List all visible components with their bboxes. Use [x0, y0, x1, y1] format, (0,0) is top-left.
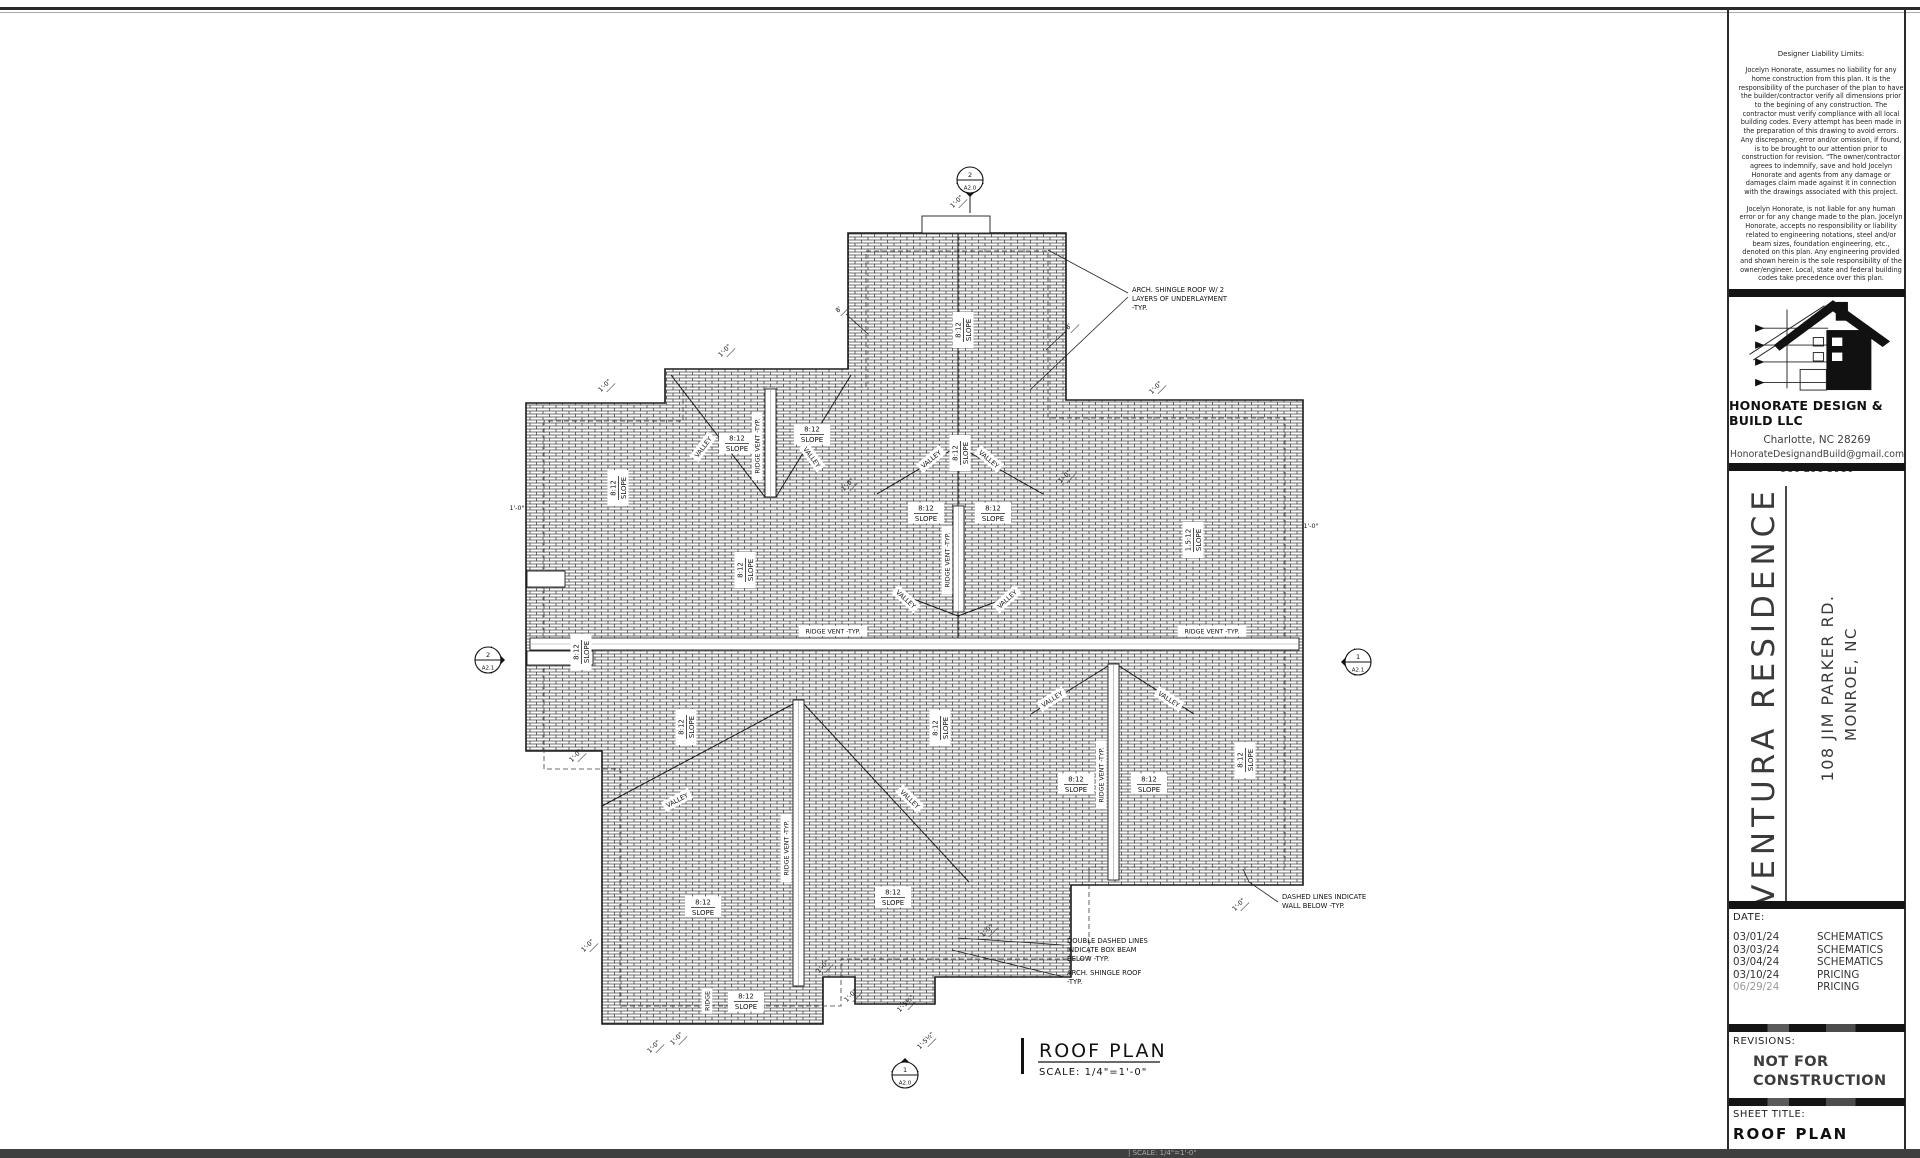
- svg-text:A2.0: A2.0: [964, 186, 977, 192]
- roof-opening: [527, 571, 565, 587]
- title-tick: [1021, 1038, 1024, 1074]
- stamp-line1: NOT FOR: [1753, 1053, 1903, 1072]
- date-type: SCHEMATICS: [1817, 956, 1883, 969]
- date-rows: 03/01/24 SCHEMATICS 03/03/24 SCHEMATICS …: [1733, 931, 1903, 994]
- svg-text:1'-0": 1'-0": [1231, 897, 1247, 913]
- svg-text:8:12: 8:12: [804, 426, 820, 434]
- svg-text:8:12: 8:12: [885, 889, 901, 897]
- section-marker: 2A2.0: [956, 167, 984, 197]
- svg-text:8:12: 8:12: [932, 720, 940, 736]
- svg-text:8:12: 8:12: [695, 899, 711, 907]
- svg-text:SLOPE: SLOPE: [882, 899, 904, 907]
- dimension-label: 1'-0": [1304, 523, 1319, 530]
- svg-text:SLOPE: SLOPE: [735, 1003, 757, 1011]
- divider-bar: [1729, 1098, 1905, 1106]
- svg-text:SLOPE: SLOPE: [1138, 786, 1160, 794]
- roof-opening: [922, 216, 990, 233]
- svg-text:1: 1: [903, 1066, 907, 1074]
- svg-text:BELOW -TYP.: BELOW -TYP.: [1067, 955, 1109, 963]
- svg-text:SLOPE: SLOPE: [583, 641, 591, 663]
- footer-strip-text: | SCALE: 1/4"=1'-0": [1128, 1149, 1197, 1157]
- svg-text:A2.0: A2.0: [899, 1081, 912, 1087]
- svg-text:8:12: 8:12: [1068, 776, 1084, 784]
- svg-text:2: 2: [486, 651, 490, 659]
- date-type: PRICING: [1817, 969, 1859, 982]
- divider-bar: [1729, 463, 1905, 471]
- svg-text:1'-0": 1'-0": [717, 343, 733, 359]
- slope-label: 8:12SLOPE: [719, 433, 755, 454]
- slope-label: 8:12SLOPE: [1058, 774, 1094, 795]
- svg-text:1'-5½": 1'-5½": [915, 1030, 936, 1051]
- annotation-note: ARCH. SHINGLE ROOF W/ 2LAYERS OF UNDERLA…: [1132, 286, 1228, 312]
- svg-text:8:12: 8:12: [952, 445, 960, 461]
- svg-text:SLOPE: SLOPE: [962, 442, 970, 464]
- date-row: 06/29/24 PRICING: [1733, 981, 1903, 994]
- svg-text:RIDGE VENT -TYP.: RIDGE VENT -TYP.: [1098, 748, 1105, 803]
- revisions-label: REVISIONS:: [1733, 1036, 1903, 1047]
- svg-text:8:12: 8:12: [573, 644, 581, 660]
- ridge-vent-label: RIDGE VENT -TYP.: [799, 626, 867, 637]
- svg-text:SLOPE: SLOPE: [982, 515, 1004, 523]
- sheet-bottom-edge: | SCALE: 1/4"=1'-0": [0, 1149, 1920, 1158]
- annotation-note: DOUBLE DASHED LINESINDICATE BOX BEAMBELO…: [1067, 937, 1148, 963]
- slope-label: 8:12SLOPE: [1131, 774, 1167, 795]
- svg-text:A2.1: A2.1: [1352, 668, 1365, 674]
- divider-bar: [1729, 1024, 1905, 1032]
- svg-text:8:12: 8:12: [1237, 752, 1245, 768]
- svg-text:WALL BELOW -TYP.: WALL BELOW -TYP.: [1282, 902, 1345, 910]
- dimension-label: 1'-0": [717, 342, 735, 360]
- slope-label: 8:12SLOPE: [908, 503, 944, 524]
- revisions-section: REVISIONS: NOT FOR CONSTRUCTION: [1733, 1036, 1903, 1091]
- date-type: SCHEMATICS: [1817, 931, 1883, 944]
- slope-label: 8:12SLOPE: [875, 887, 911, 908]
- slope-label: 8:12SLOPE: [728, 991, 764, 1012]
- date-row: 03/01/24 SCHEMATICS: [1733, 931, 1903, 944]
- sheet-border-top-thin: [0, 12, 1920, 13]
- svg-text:INDICATE BOX BEAM: INDICATE BOX BEAM: [1067, 946, 1137, 954]
- date-value: 03/01/24: [1733, 931, 1817, 944]
- svg-text:-TYP.: -TYP.: [1132, 304, 1147, 312]
- svg-text:SLOPE: SLOPE: [801, 436, 823, 444]
- dimension-label: 1'-0": [1148, 379, 1166, 397]
- divider-bar: [1729, 901, 1905, 909]
- liability-heading: Designer Liability Limits:: [1738, 50, 1904, 59]
- stamp-line2: CONSTRUCTION: [1753, 1072, 1903, 1091]
- dimension-label: 1'-0": [669, 1030, 687, 1048]
- dimension-label: 1'-0": [597, 377, 615, 395]
- svg-text:1'-0": 1'-0": [949, 194, 965, 210]
- svg-text:8:12: 8:12: [955, 322, 963, 338]
- svg-text:SLOPE: SLOPE: [1195, 529, 1203, 551]
- dimension-label: 1'-5½": [915, 1030, 937, 1052]
- svg-text:1'-0": 1'-0": [597, 378, 613, 394]
- project-name-vertical: VENTURA RESIDENCE: [1743, 486, 1787, 906]
- company-email: HonorateDesignandBuild@gmail.com: [1730, 449, 1904, 460]
- company-logo: [1742, 296, 1892, 396]
- svg-text:SLOPE: SLOPE: [726, 445, 748, 453]
- svg-text:SLOPE: SLOPE: [692, 909, 714, 917]
- annotation-note: DASHED LINES INDICATEWALL BELOW -TYP.: [1282, 893, 1366, 910]
- annotation-note: ARCH. SHINGLE ROOF-TYP.: [1067, 969, 1142, 986]
- date-value: 03/04/24: [1733, 956, 1817, 969]
- liability-paragraph-1: Jocelyn Honorate, assumes no liability f…: [1738, 66, 1904, 197]
- company-block: HONORATE DESIGN & BUILD LLC Charlotte, N…: [1729, 296, 1905, 475]
- sheet-title-label: SHEET TITLE:: [1733, 1109, 1903, 1120]
- dimension-label: 1'-0": [949, 193, 967, 211]
- slope-label: 8:12SLOPE: [685, 897, 721, 918]
- svg-text:ARCH. SHINGLE ROOF W/ 2: ARCH. SHINGLE ROOF W/ 2: [1132, 286, 1224, 294]
- not-for-construction-stamp: NOT FOR CONSTRUCTION: [1753, 1053, 1903, 1091]
- svg-text:8:12: 8:12: [1141, 776, 1157, 784]
- date-value: 06/29/24: [1733, 981, 1817, 994]
- sheet-title-section: SHEET TITLE: ROOF PLAN: [1733, 1109, 1903, 1143]
- svg-text:SLOPE: SLOPE: [747, 559, 755, 581]
- slope-label: 1.5:12SLOPE: [1183, 522, 1204, 558]
- date-value: 03/03/24: [1733, 944, 1817, 957]
- ridge-vent-label: RIDGE VENT -TYP.: [1096, 741, 1107, 809]
- svg-text:1.5:12: 1.5:12: [1185, 529, 1193, 551]
- svg-text:DASHED LINES INDICATE: DASHED LINES INDICATE: [1282, 893, 1366, 901]
- svg-text:RIDGE VENT -TYP.: RIDGE VENT -TYP.: [754, 419, 761, 474]
- slope-label: 8:12SLOPE: [676, 709, 697, 745]
- project-address-line2: MONROE, NC: [1841, 564, 1861, 804]
- plan-scale: SCALE: 1/4"=1'-0": [1039, 1067, 1147, 1078]
- svg-text:1: 1: [1356, 653, 1360, 661]
- svg-text:SLOPE: SLOPE: [1247, 749, 1255, 771]
- svg-text:-TYP.: -TYP.: [1067, 978, 1082, 986]
- sheet-border-top: [0, 7, 1920, 10]
- svg-text:1'-0": 1'-0": [580, 938, 596, 954]
- project-address-line1: 108 JIM PARKER RD.: [1817, 568, 1837, 808]
- titleblock-left-border: [1727, 8, 1729, 1149]
- ridge-vent-label: RIDGE VENT -TYP.: [942, 526, 953, 594]
- svg-text:1'-0": 1'-0": [510, 505, 525, 512]
- svg-text:1'-0": 1'-0": [646, 1039, 662, 1055]
- svg-text:RIDGE VENT -TYP.: RIDGE VENT -TYP.: [806, 628, 861, 635]
- section-marker: 2A2.1: [475, 646, 505, 674]
- svg-text:1'-0": 1'-0": [669, 1031, 685, 1047]
- slope-label: 8:12SLOPE: [735, 552, 756, 588]
- svg-text:SLOPE: SLOPE: [915, 515, 937, 523]
- slope-label: 8:12SLOPE: [930, 710, 951, 746]
- sheet-border-right: [1904, 8, 1906, 1149]
- svg-text:8:12: 8:12: [678, 719, 686, 735]
- svg-text:RIDGE VENT -TYP.: RIDGE VENT -TYP.: [1185, 628, 1240, 635]
- slope-label: 8:12SLOPE: [953, 312, 974, 348]
- slope-label: 8:12SLOPE: [571, 634, 592, 670]
- svg-text:LAYERS OF UNDERLAYMENT: LAYERS OF UNDERLAYMENT: [1132, 295, 1228, 303]
- svg-text:2: 2: [968, 171, 972, 179]
- liability-notes: Designer Liability Limits: Jocelyn Honor…: [1738, 50, 1904, 291]
- svg-text:8': 8': [834, 305, 843, 314]
- roof-plan-drawing: 8:12SLOPE8:12SLOPE8:12SLOPE8:12SLOPE8:12…: [440, 120, 1460, 1110]
- date-row: 03/03/24 SCHEMATICS: [1733, 944, 1903, 957]
- svg-text:8:12: 8:12: [737, 562, 745, 578]
- date-type: SCHEMATICS: [1817, 944, 1883, 957]
- svg-text:ARCH. SHINGLE ROOF: ARCH. SHINGLE ROOF: [1067, 969, 1142, 977]
- date-value: 03/10/24: [1733, 969, 1817, 982]
- dimension-label: 1'-0": [510, 505, 525, 512]
- svg-text:RIDGE VENT -TYP.: RIDGE VENT -TYP.: [944, 533, 951, 588]
- slope-label: 8:12SLOPE: [1235, 742, 1256, 778]
- svg-text:8:12: 8:12: [729, 435, 745, 443]
- date-section: DATE: 03/01/24 SCHEMATICS 03/03/24 SCHEM…: [1733, 912, 1903, 994]
- liability-paragraph-2: Jocelyn Honorate, is not liable for any …: [1738, 205, 1904, 283]
- svg-text:SLOPE: SLOPE: [1065, 786, 1087, 794]
- sheet-title-value: ROOF PLAN: [1733, 1125, 1903, 1143]
- date-row: 03/04/24 SCHEMATICS: [1733, 956, 1903, 969]
- dimension-label: 8': [834, 301, 849, 316]
- company-city: Charlotte, NC 28269: [1763, 434, 1870, 446]
- company-name: HONORATE DESIGN & BUILD LLC: [1729, 398, 1905, 428]
- ridge-vent-label: RIDGE VENT -TYP.: [781, 814, 792, 882]
- svg-text:SLOPE: SLOPE: [965, 319, 973, 341]
- svg-text:8:12: 8:12: [610, 480, 618, 496]
- svg-text:SLOPE: SLOPE: [942, 717, 950, 739]
- svg-text:SLOPE: SLOPE: [620, 477, 628, 499]
- svg-text:RIDGE VENT -TYP.: RIDGE VENT -TYP.: [783, 821, 790, 876]
- svg-text:A2.1: A2.1: [482, 666, 495, 672]
- section-marker: 1A2.1: [1341, 648, 1371, 676]
- svg-text:RIDGE: RIDGE: [704, 991, 711, 1011]
- date-type: PRICING: [1817, 981, 1859, 994]
- ridge-vent-label: RIDGE VENT -TYP.: [1178, 626, 1246, 637]
- section-marker: 1A2.0: [891, 1058, 919, 1088]
- slope-label: 8:12SLOPE: [794, 424, 830, 445]
- dimension-label: 1'-0": [646, 1038, 664, 1056]
- svg-text:SLOPE: SLOPE: [688, 716, 696, 738]
- svg-text:1'-0": 1'-0": [1148, 380, 1164, 396]
- slope-label: 8:12SLOPE: [608, 470, 629, 506]
- plan-title: ROOF PLAN: [1039, 1040, 1167, 1062]
- slope-label: 8:12SLOPE: [950, 435, 971, 471]
- dimension-label: 1'-0": [1231, 896, 1249, 914]
- ridge-label: RIDGE: [702, 988, 713, 1014]
- svg-text:8:12: 8:12: [738, 993, 754, 1001]
- ridge-vent-label: RIDGE VENT -TYP.: [752, 412, 763, 480]
- date-label: DATE:: [1733, 912, 1903, 923]
- date-row: 03/10/24 PRICING: [1733, 969, 1903, 982]
- svg-text:DOUBLE DASHED LINES: DOUBLE DASHED LINES: [1067, 937, 1148, 945]
- svg-text:8:12: 8:12: [985, 505, 1001, 513]
- svg-text:1'-0": 1'-0": [1304, 523, 1319, 530]
- svg-text:8:12: 8:12: [918, 505, 934, 513]
- drawing-sheet: { "colors": {"line":"#1a1a1a","sheet":"#…: [0, 0, 1920, 1158]
- dimension-label: 1'-0": [580, 937, 598, 955]
- slope-label: 8:12SLOPE: [975, 503, 1011, 524]
